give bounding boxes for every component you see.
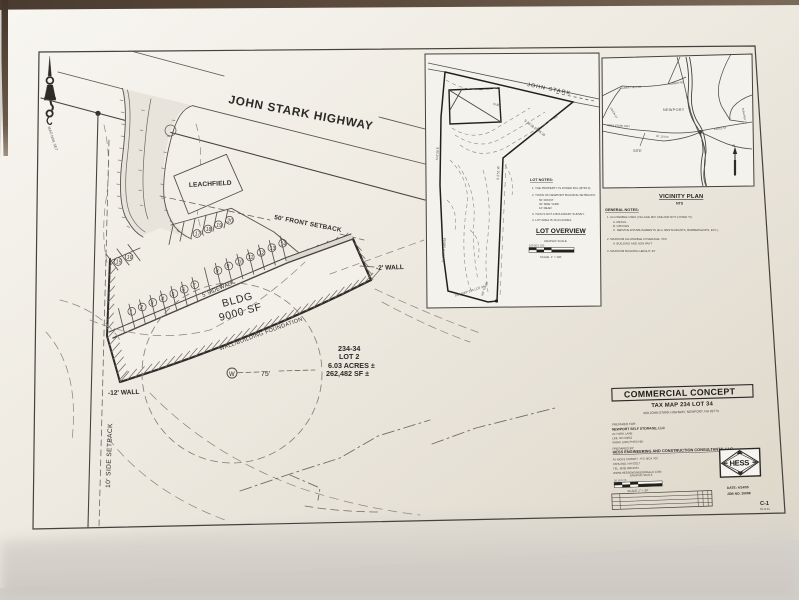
svg-text:100 50 0 10: 100 50 0 100 (529, 244, 545, 248)
svg-text:WORK (238) PHSS HID: WORK (238) PHSS HID (612, 440, 643, 445)
svg-text:3. MAXIMUM BUILDING HEIGHT:: 3. MAXIMUM BUILDING HEIGHT: 40' (607, 249, 656, 253)
svg-text:LOT OVERVIEW: LOT OVERVIEW (536, 228, 587, 235)
svg-text:20 10 0: 20 10 0 20 (614, 478, 627, 482)
svg-text:10: 10 (237, 260, 243, 266)
svg-text:NEWPORT: NEWPORT (663, 108, 685, 112)
svg-text:SCALE 1" = 30': SCALE 1" = 30' (627, 488, 648, 493)
svg-text:LOT NOTES:: LOT NOTES: (530, 178, 553, 182)
svg-text:-2' WALL: -2' WALL (376, 264, 404, 272)
svg-text:1: 1 (130, 310, 133, 316)
svg-text:PREPARED FOR:: PREPARED FOR: (612, 422, 637, 427)
svg-text:6: 6 (182, 287, 185, 293)
svg-text:-12' WALL: -12' WALL (108, 389, 140, 397)
svg-text:GENERAL NOTES:: GENERAL NOTES: (605, 208, 639, 212)
svg-text:17: 17 (195, 232, 201, 238)
svg-text:10' REAR: 10' REAR (539, 206, 552, 210)
svg-text:SITE: SITE (633, 148, 642, 153)
svg-text:12: 12 (259, 251, 265, 257)
svg-text:1. THE PROPERTY IS ZONED RCL: 1. THE PROPERTY IS ZONED RCL (B745.0). (532, 186, 591, 190)
svg-text:HESS: HESS (729, 458, 749, 468)
svg-text:1. ALLOWABLE USES (VILLAGE: 1. ALLOWABLE USES (VILLAGE MIX USE AND N… (607, 215, 693, 219)
svg-text:20: 20 (226, 219, 233, 225)
svg-text:5: 5 (172, 292, 175, 298)
svg-text:19: 19 (216, 223, 222, 229)
svg-text:7: 7 (193, 283, 196, 289)
svg-text:SCALE: 1" = 100': SCALE: 1" = 100' (540, 255, 562, 259)
svg-text:C. SERVICE ESTABLISHMENTS (E: C. SERVICE ESTABLISHMENTS (E.G. RESTAURA… (613, 228, 718, 232)
svg-text:LOT 2: LOT 2 (339, 352, 359, 361)
svg-text:2. TOWN OF NEWPORT BUILDING: 2. TOWN OF NEWPORT BUILDING SETBACKS: (532, 193, 596, 197)
svg-text:8: 8 (216, 269, 219, 275)
svg-text:DATE: 4/14/05: DATE: 4/14/05 (727, 485, 749, 490)
svg-text:2: 2 (139, 305, 143, 311)
svg-text:A. BUILDING AND NON PAVT: A. BUILDING AND NON PAVT (613, 242, 652, 246)
svg-text:14: 14 (281, 242, 287, 248)
svg-text:C-1: C-1 (760, 501, 769, 507)
svg-text:2. MAXIMUM ALLOWABLE COVERA: 2. MAXIMUM ALLOWABLE COVERAGE: 70% (607, 237, 667, 241)
svg-text:JOB NO. 25068: JOB NO. 25068 (727, 491, 751, 496)
svg-text:262,482 SF ±: 262,482 SF ± (326, 369, 369, 378)
svg-text:W: W (229, 372, 235, 378)
svg-text:16: 16 (127, 255, 133, 261)
svg-text:13: 13 (270, 246, 276, 252)
svg-text:3. THIS IS NOT A BOUNDARY SU: 3. THIS IS NOT A BOUNDARY SURVEY. (532, 212, 585, 216)
svg-text:GRAPHIC SCALE: GRAPHIC SCALE (630, 473, 653, 478)
svg-text:NTS: NTS (676, 202, 684, 206)
svg-text:15: 15 (116, 260, 122, 266)
svg-text:VICINITY PLAN: VICINITY PLAN (659, 194, 703, 200)
svg-text:01 of 01: 01 of 01 (760, 507, 770, 511)
svg-text:3: 3 (151, 301, 154, 307)
svg-text:4: 4 (161, 296, 164, 302)
svg-text:75': 75' (261, 371, 270, 378)
svg-text:9: 9 (227, 264, 230, 270)
svg-text:S 2'51 W: S 2'51 W (496, 165, 501, 180)
svg-text:11: 11 (248, 255, 253, 261)
svg-text:GRAPHIC SCALE: GRAPHIC SCALE (544, 239, 567, 243)
svg-text:4. LOT AREA IS ±6.03 ACRES.: 4. LOT AREA IS ±6.03 ACRES. (532, 218, 572, 222)
svg-text:18: 18 (206, 227, 212, 233)
